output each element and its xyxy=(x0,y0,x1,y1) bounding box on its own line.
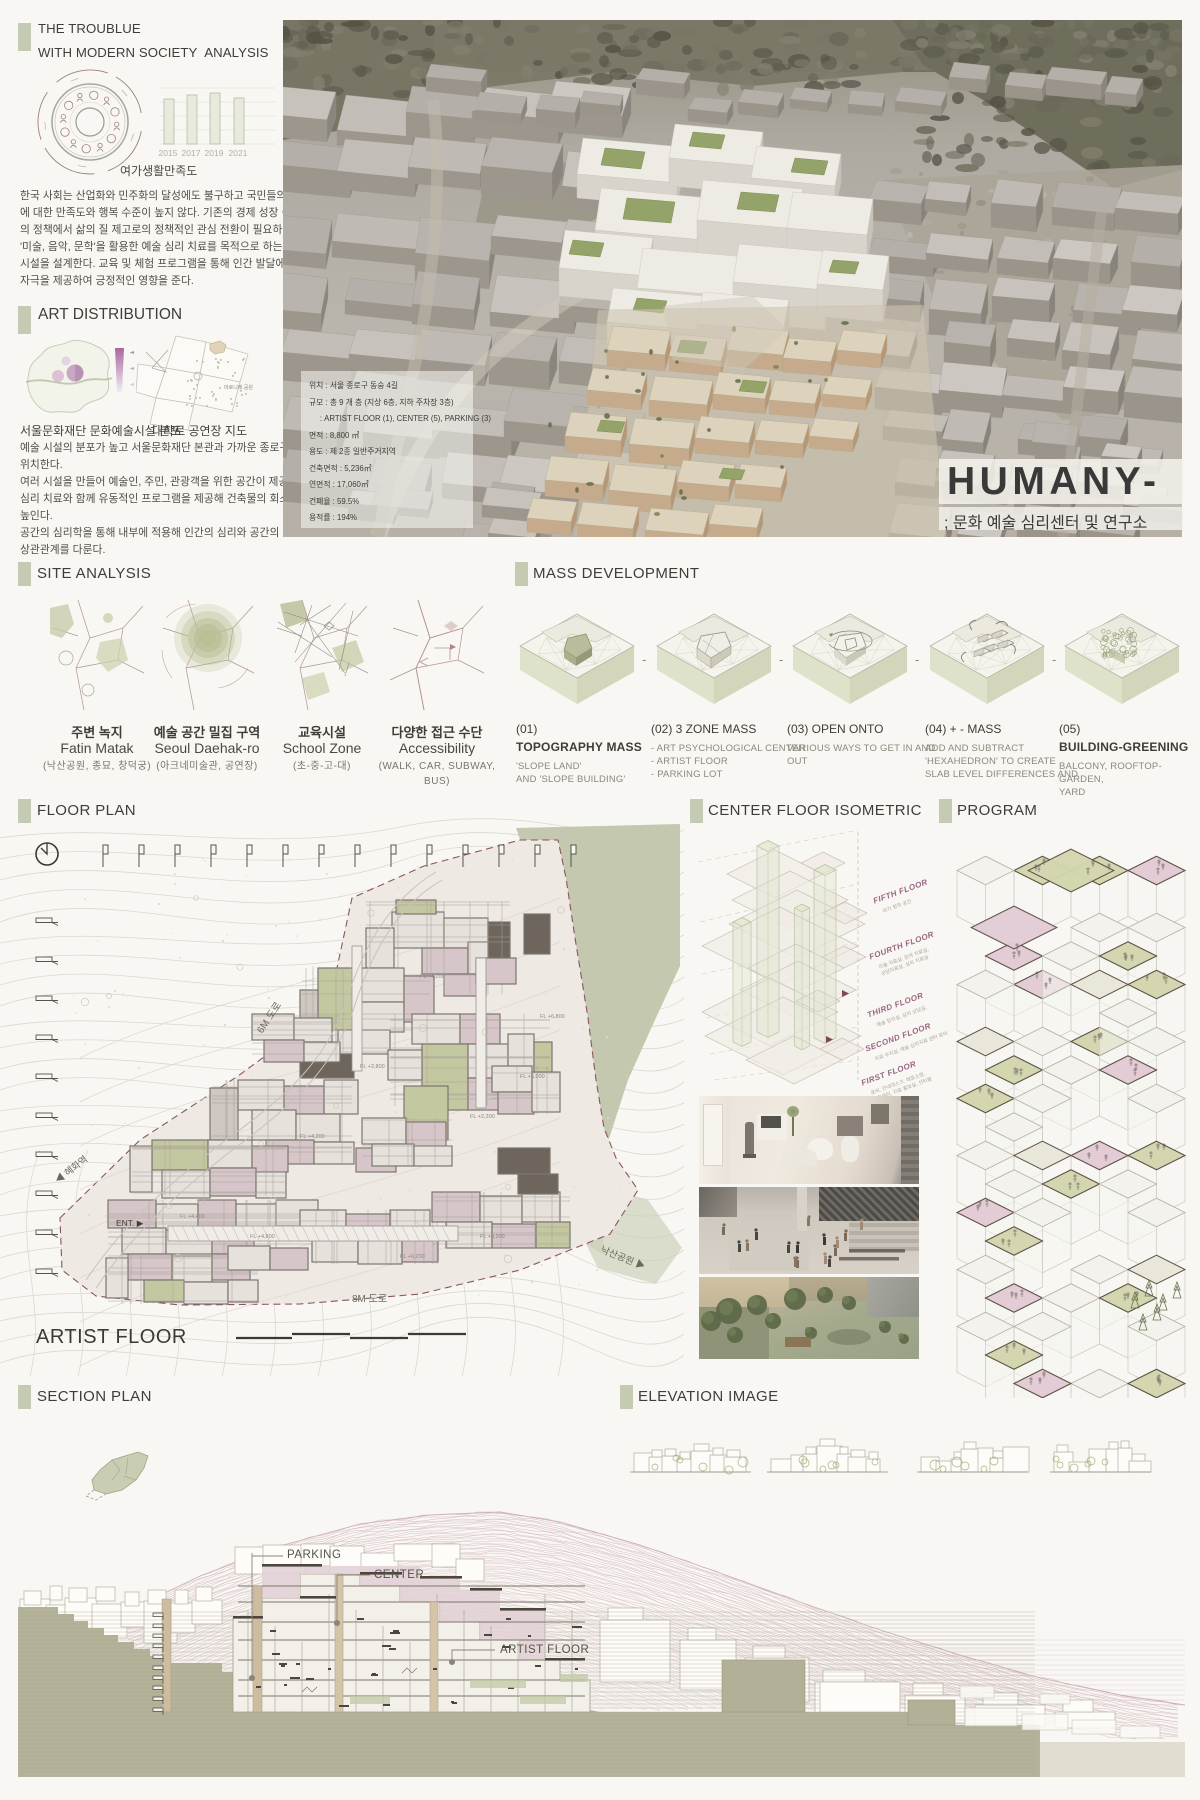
svg-text:FL +6,800: FL +6,800 xyxy=(540,1014,565,1020)
svg-text:FL +6,000: FL +6,000 xyxy=(520,1074,545,1080)
svg-text:FL +2,200: FL +2,200 xyxy=(470,1114,495,1120)
svg-text:PARKING: PARKING xyxy=(287,1549,341,1561)
svg-text:ENT. ▶: ENT. ▶ xyxy=(116,1218,144,1228)
svg-text:FL +6,200: FL +6,200 xyxy=(400,1254,425,1260)
svg-text:2019: 2019 xyxy=(205,148,224,158)
svg-text:FL +4,800: FL +4,800 xyxy=(250,1234,275,1240)
svg-text:2021: 2021 xyxy=(229,148,248,158)
svg-text:FL +4,400: FL +4,400 xyxy=(180,1214,205,1220)
svg-text:FL +4,200: FL +4,200 xyxy=(300,1134,325,1140)
svg-text:8M 도로: 8M 도로 xyxy=(352,1294,387,1305)
svg-text:FL +2,800: FL +2,800 xyxy=(360,1064,385,1070)
svg-text:2017: 2017 xyxy=(182,148,201,158)
svg-text:FL +4,200: FL +4,200 xyxy=(420,974,445,980)
svg-text:마로니에 공원: 마로니에 공원 xyxy=(224,384,253,391)
svg-text:2015: 2015 xyxy=(159,148,178,158)
svg-text:CENTER: CENTER xyxy=(374,1569,424,1581)
svg-text:ARTIST FLOOR: ARTIST FLOOR xyxy=(500,1644,589,1656)
svg-text:FL +8,200: FL +8,200 xyxy=(480,1234,505,1240)
